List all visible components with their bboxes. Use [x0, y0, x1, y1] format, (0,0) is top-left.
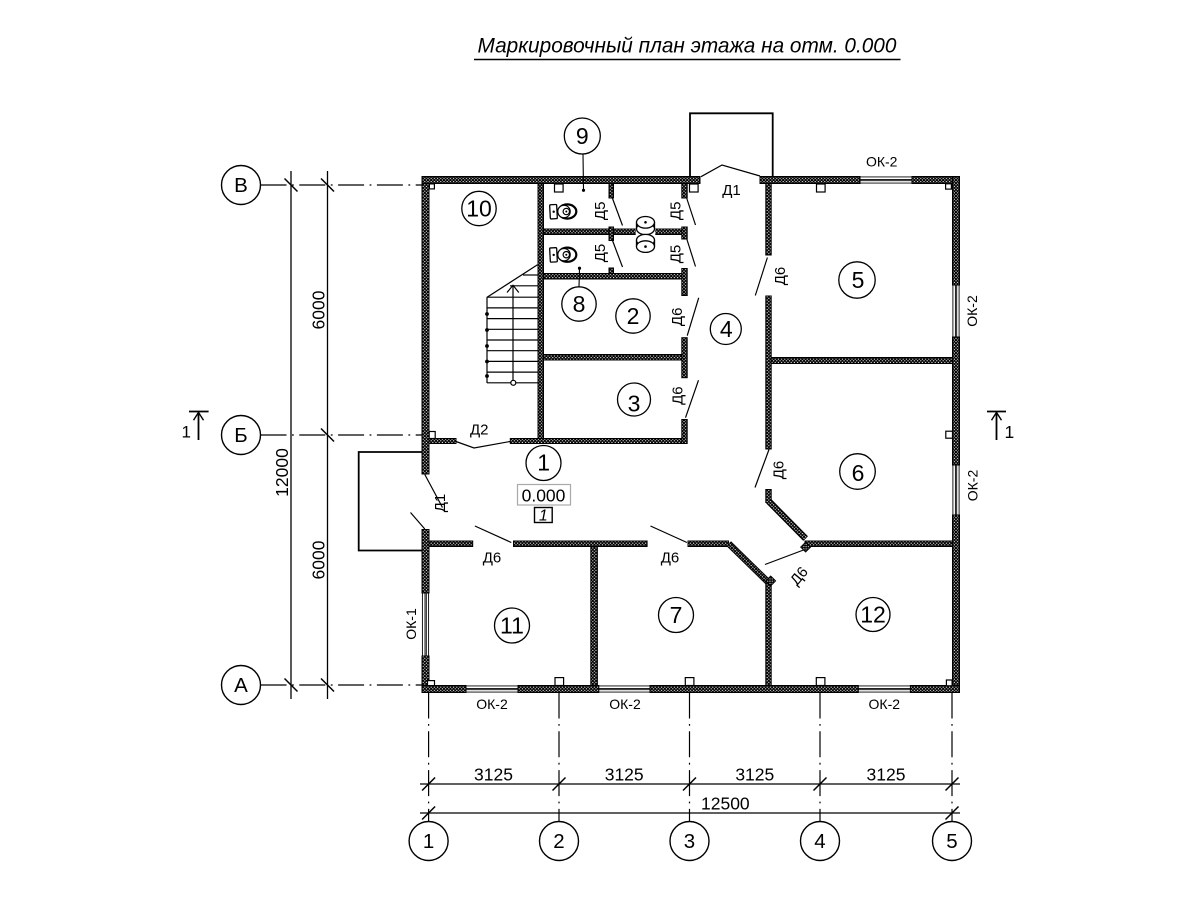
- svg-text:4: 4: [814, 830, 825, 853]
- svg-text:6000: 6000: [309, 540, 329, 579]
- svg-text:3125: 3125: [474, 765, 513, 785]
- svg-text:Д1: Д1: [722, 182, 741, 199]
- svg-text:11: 11: [500, 613, 524, 639]
- svg-text:ОК-2: ОК-2: [866, 154, 898, 170]
- svg-text:ОК-2: ОК-2: [609, 696, 641, 712]
- svg-text:1: 1: [182, 423, 191, 442]
- svg-text:ОК-2: ОК-2: [964, 295, 980, 327]
- svg-text:Д6: Д6: [669, 308, 686, 327]
- svg-text:7: 7: [670, 602, 683, 628]
- svg-text:Д1: Д1: [432, 494, 449, 513]
- svg-text:3125: 3125: [605, 765, 644, 785]
- svg-text:2: 2: [627, 303, 640, 329]
- svg-text:3: 3: [628, 391, 641, 417]
- svg-text:Д5: Д5: [592, 202, 609, 221]
- svg-text:12000: 12000: [272, 448, 292, 497]
- svg-text:Д5: Д5: [592, 244, 609, 263]
- svg-text:12: 12: [860, 602, 886, 628]
- svg-text:6: 6: [852, 460, 865, 486]
- svg-text:ОК-2: ОК-2: [965, 470, 981, 502]
- svg-text:ОК-2: ОК-2: [476, 696, 508, 712]
- svg-text:Д6: Д6: [661, 550, 680, 567]
- svg-text:А: А: [234, 674, 248, 697]
- svg-text:6000: 6000: [309, 290, 329, 329]
- svg-text:3: 3: [684, 830, 695, 853]
- svg-text:1: 1: [1005, 422, 1015, 442]
- svg-text:Маркировочный план этажа на от: Маркировочный план этажа на отм. 0.000: [478, 35, 897, 58]
- svg-text:9: 9: [576, 123, 589, 149]
- svg-text:ОК-1: ОК-1: [403, 608, 419, 640]
- svg-text:Д2: Д2: [470, 422, 489, 439]
- svg-text:5: 5: [946, 830, 957, 853]
- svg-text:Д6: Д6: [771, 461, 788, 480]
- svg-text:1: 1: [537, 450, 550, 476]
- svg-text:1: 1: [423, 830, 434, 853]
- svg-text:В: В: [234, 174, 248, 197]
- svg-text:1: 1: [539, 507, 548, 524]
- svg-text:Д6: Д6: [772, 267, 789, 286]
- svg-text:8: 8: [573, 291, 586, 317]
- svg-text:0.000: 0.000: [522, 485, 566, 505]
- svg-text:3125: 3125: [735, 765, 774, 785]
- svg-text:Д5: Д5: [668, 202, 685, 221]
- svg-text:10: 10: [466, 196, 492, 222]
- svg-text:Д6: Д6: [483, 550, 502, 567]
- svg-text:3125: 3125: [867, 765, 906, 785]
- svg-text:Д6: Д6: [670, 386, 687, 405]
- svg-text:ОК-2: ОК-2: [869, 696, 901, 712]
- svg-text:4: 4: [720, 316, 733, 342]
- svg-text:Б: Б: [234, 424, 247, 447]
- svg-text:5: 5: [852, 267, 865, 293]
- svg-text:2: 2: [553, 830, 564, 853]
- svg-text:Д5: Д5: [668, 245, 685, 264]
- svg-text:12500: 12500: [701, 794, 750, 814]
